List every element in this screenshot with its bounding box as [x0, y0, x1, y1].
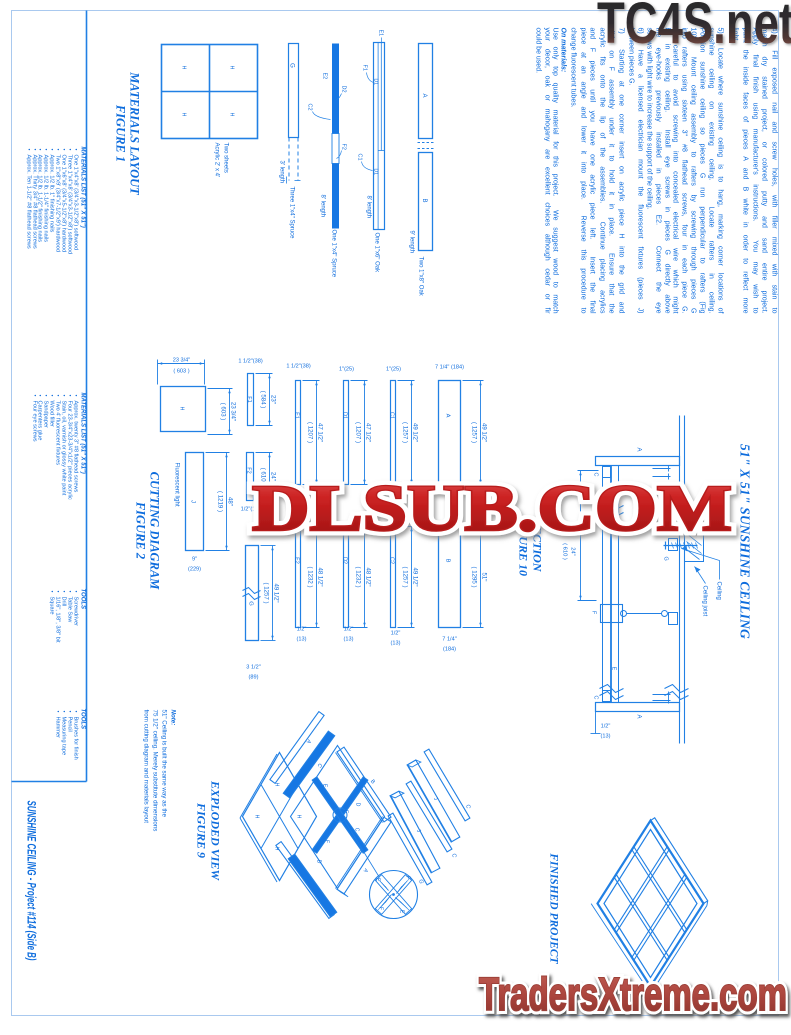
svg-text:A: A [635, 447, 641, 451]
svg-text:A: A [361, 866, 368, 873]
svg-text:23 3/4": 23 3/4" [172, 357, 190, 363]
svg-text:C: C [450, 853, 456, 857]
svg-text:(13): (13) [390, 640, 400, 646]
svg-text:H: H [228, 112, 234, 116]
svg-text:F: F [342, 809, 348, 812]
svg-text:23 3/4": 23 3/4" [229, 401, 236, 420]
svg-text:One 1"x6" Oak: One 1"x6" Oak [373, 232, 379, 273]
svg-text:( 1257 ): ( 1257 ) [262, 582, 269, 603]
svg-text:( 603 ): ( 603 ) [219, 402, 226, 420]
svg-text:23": 23" [269, 395, 276, 404]
svg-text:E: E [610, 666, 616, 670]
svg-text:A: A [421, 93, 427, 97]
svg-text:D: D [354, 802, 360, 806]
svg-text:J: J [432, 796, 439, 802]
svg-text:(13): (13) [343, 636, 353, 642]
svg-text:Note:: Note: [169, 709, 176, 725]
svg-text:FIGURE 1: FIGURE 1 [113, 103, 127, 161]
svg-text:8' length: 8' length [365, 195, 371, 218]
svg-text:47 1/2": 47 1/2" [364, 422, 371, 441]
svg-text:Ceiling joist: Ceiling joist [701, 585, 707, 616]
svg-text:C: C [353, 827, 359, 831]
svg-text:H: H [295, 814, 301, 818]
svg-text:1/2": 1/2" [390, 630, 400, 636]
svg-text:Acrylic 2' x 4': Acrylic 2' x 4' [213, 142, 219, 177]
svg-text:H: H [253, 814, 259, 818]
svg-text:1 1/2"(38): 1 1/2"(38) [286, 363, 311, 369]
svg-text:1/2": 1/2" [296, 626, 306, 632]
svg-text:B: B [421, 198, 427, 202]
svg-text:One 1"x4" Spruce: One 1"x4" Spruce [330, 229, 336, 277]
svg-text:B: B [368, 778, 375, 785]
svg-text:( 1257 ): ( 1257 ) [470, 421, 477, 442]
svg-text:F2: F2 [340, 143, 346, 149]
svg-text:SUNSHINE CEILING - Project #11: SUNSHINE CEILING - Project #114 (Side B) [24, 800, 38, 960]
svg-text:( 603 ): ( 603 ) [173, 368, 189, 374]
svg-text:from cutting diagram and mater: from cutting diagram and materials layou… [142, 709, 149, 823]
svg-text:FIGURE 9: FIGURE 9 [194, 801, 208, 857]
svg-text:TC4S.net: TC4S.net [597, 0, 791, 56]
svg-text:TradersXtreme.com: TradersXtreme.com [479, 968, 787, 1020]
svg-text:F: F [323, 839, 329, 842]
svg-text:F1: F1 [246, 396, 252, 402]
svg-text:D1: D1 [341, 411, 347, 418]
svg-text:(13): (13) [296, 636, 306, 642]
svg-text:F: F [404, 875, 410, 878]
svg-text:( 1257 ): ( 1257 ) [401, 421, 408, 442]
svg-text:51" Ceiling is built the same: 51" Ceiling is built the same way as the [160, 709, 167, 817]
svg-text:D1: D1 [372, 78, 378, 85]
svg-text:A: A [444, 413, 450, 417]
svg-text:D1: D1 [372, 168, 378, 175]
svg-text:E: E [374, 877, 380, 881]
svg-text:Three 1"x4" Spruce: Three 1"x4" Spruce [288, 186, 294, 239]
svg-text:J: J [415, 828, 422, 834]
svg-text:E2: E2 [321, 72, 327, 79]
svg-text:G: G [247, 601, 253, 606]
svg-text:49 1/2": 49 1/2" [411, 422, 418, 441]
svg-text:49 1/2": 49 1/2" [272, 583, 279, 602]
svg-text:(184): (184) [442, 646, 455, 652]
svg-text:Two sheets: Two sheets [222, 142, 228, 172]
svg-text:DLSUB.COM: DLSUB.COM [252, 472, 732, 545]
svg-text:75 1/2" ceiling. Merely subst: 75 1/2" ceiling. Merely substitute dimen… [151, 709, 158, 831]
svg-text:9' length: 9' length [408, 230, 414, 253]
svg-text:H: H [180, 112, 186, 116]
svg-text:1/2": 1/2" [343, 626, 353, 632]
svg-text:( 584 ): ( 584 ) [259, 390, 266, 408]
svg-text:8' length: 8' length [319, 194, 325, 217]
svg-text:3' length: 3' length [278, 160, 284, 183]
svg-text:G: G [417, 879, 423, 883]
svg-text:1"(25): 1"(25) [385, 366, 400, 372]
svg-text:E1: E1 [293, 412, 299, 419]
svg-text:1 1/2"(38): 1 1/2"(38) [238, 358, 263, 364]
svg-text:C: C [464, 804, 470, 808]
svg-text:A: A [635, 714, 641, 718]
svg-text:7 1/4": 7 1/4" [442, 636, 456, 642]
svg-text:3 1/2": 3 1/2" [246, 664, 260, 670]
svg-text:D2: D2 [340, 85, 346, 92]
svg-text:49 1/2": 49 1/2" [480, 422, 487, 441]
svg-text:D: D [315, 859, 321, 863]
svg-text:F: F [590, 610, 596, 614]
svg-text:E: E [398, 909, 404, 913]
svg-text:( 1207 ): ( 1207 ) [354, 421, 361, 442]
svg-text:EXPLODED VIEW: EXPLODED VIEW [208, 779, 222, 880]
svg-text:C2: C2 [306, 103, 312, 110]
svg-text:F: F [377, 906, 383, 909]
svg-text:(13): (13) [600, 733, 610, 739]
svg-text:FINISHED PROJECT: FINISHED PROJECT [547, 852, 559, 964]
svg-text:1/2": 1/2" [600, 723, 610, 729]
svg-text:( 1207 ): ( 1207 ) [306, 421, 313, 442]
svg-text:(89): (89) [248, 674, 258, 680]
svg-text:1"(25): 1"(25) [338, 366, 353, 372]
svg-text:Two 1"x8" Oak: Two 1"x8" Oak [417, 256, 423, 296]
svg-text:H: H [178, 406, 184, 410]
svg-text:7 1/4" (184): 7 1/4" (184) [434, 364, 463, 370]
svg-text:E: E [321, 783, 327, 787]
svg-text:C1: C1 [388, 411, 394, 418]
svg-text:C1: C1 [356, 153, 362, 160]
svg-text:MATERIALS LAYOUT: MATERIALS LAYOUT [127, 71, 141, 196]
svg-text:C: C [592, 695, 598, 699]
svg-text:Ceiling: Ceiling [715, 581, 721, 599]
svg-text:C: C [315, 761, 322, 768]
svg-text:47 1/2": 47 1/2" [316, 422, 323, 441]
svg-text:A: A [304, 737, 311, 744]
